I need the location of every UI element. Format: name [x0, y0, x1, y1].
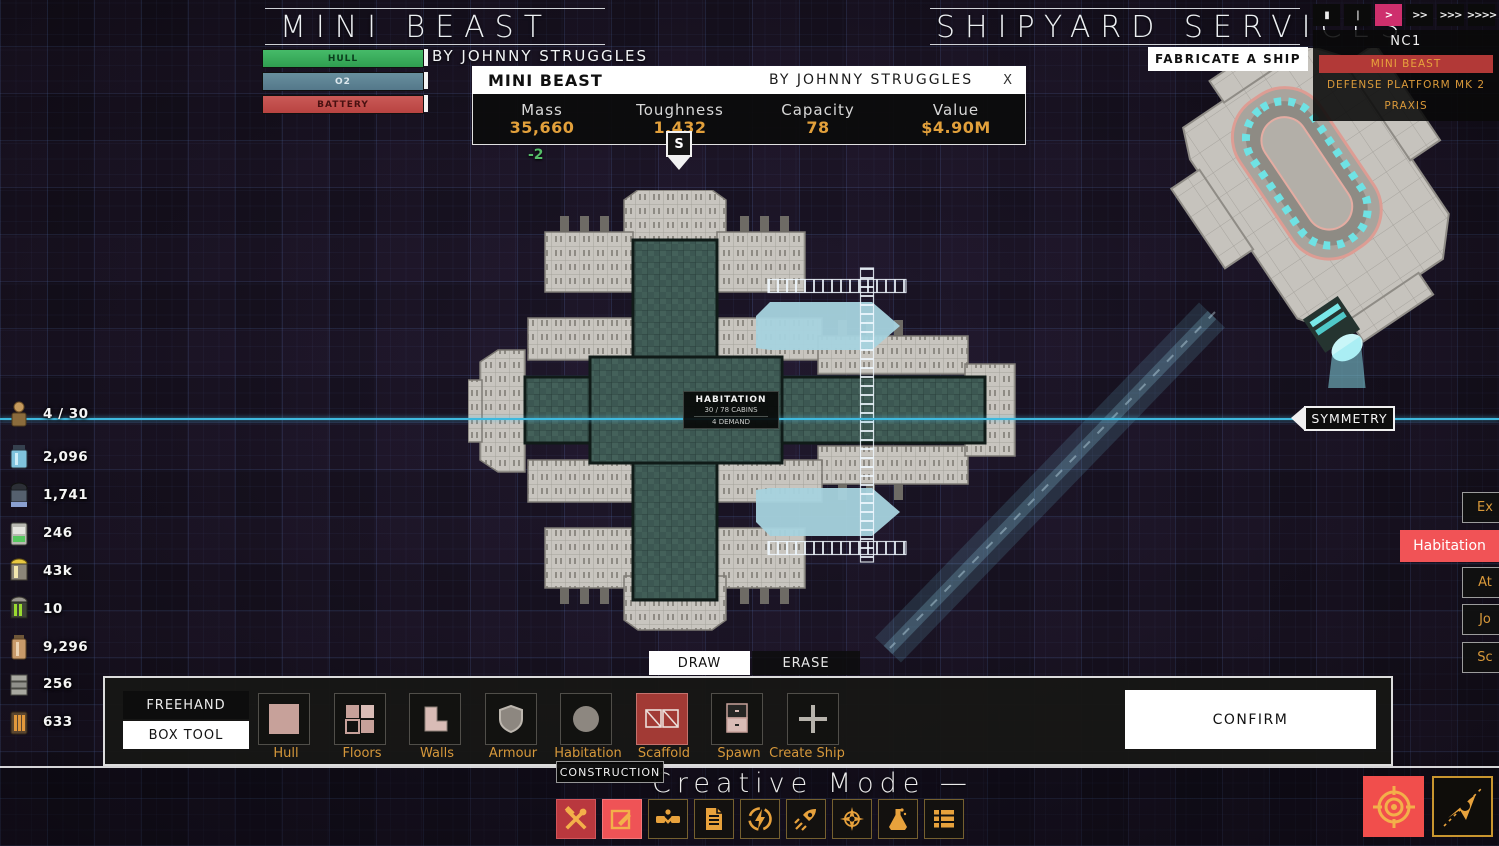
dialog-header: MINI BEAST BY JOHNNY STRUGGLES X [472, 66, 1026, 94]
barrel-green-icon [8, 595, 30, 623]
resource-value: 9,296 [43, 639, 88, 655]
construction-menu-button[interactable] [556, 799, 596, 839]
resource-row: 43k [8, 555, 72, 587]
resource-value: 10 [43, 601, 63, 617]
resource-value: 43k [43, 563, 72, 579]
page-title-left: MINI BEAST [280, 10, 552, 45]
confirm-button[interactable]: CONFIRM [1125, 690, 1376, 749]
tool-scaffold[interactable] [636, 693, 688, 745]
hull-bar-label: HULL [328, 54, 358, 64]
research-menu-button[interactable] [878, 799, 918, 839]
step-button[interactable]: | [1344, 4, 1371, 26]
ship-list-item-praxis[interactable]: PRAXIS [1319, 97, 1493, 115]
canister-dark-icon [8, 481, 30, 509]
resource-value: 1,741 [43, 487, 88, 503]
tab-erase[interactable]: ERASE [752, 651, 860, 675]
crew-icon [8, 400, 30, 428]
target-mode-button[interactable] [1363, 776, 1424, 837]
speed-controls: ▮ | > >> >>> >>>> [1313, 4, 1495, 26]
symmetry-button[interactable]: SYMMETRY [1304, 406, 1395, 431]
resource-row: 1,741 [8, 479, 88, 511]
title-rule-bottom-right [930, 44, 1300, 45]
habitation-icon [570, 703, 602, 735]
cell-green-icon [8, 519, 30, 547]
barrel-yellow-icon [8, 557, 30, 585]
side-button-sc[interactable]: Sc [1462, 642, 1499, 673]
ship-list-item-defense-platform[interactable]: DEFENSE PLATFORM MK 2 [1319, 76, 1493, 94]
draw-menu-button[interactable] [602, 799, 642, 839]
inventory-list-icon [931, 806, 957, 832]
walls-icon [419, 703, 451, 735]
stat-capacity-value: 78 [749, 118, 887, 137]
tool-hull[interactable] [258, 693, 310, 745]
habitation-room-label: HABITATION 30 / 78 CABINS 4 DEMAND [683, 391, 779, 429]
speed-4x-button[interactable]: >>>> [1468, 4, 1495, 26]
resource-row: 633 [8, 706, 73, 738]
tool-armour[interactable] [485, 693, 537, 745]
navigation-compass-icon [839, 806, 865, 832]
hull-icon [269, 704, 299, 734]
side-button-ex[interactable]: Ex [1462, 492, 1499, 523]
title-rule-top-left [265, 8, 605, 9]
scaffold-icon [644, 705, 680, 733]
tool-create-ship-label: Create Ship [767, 746, 847, 761]
freehand-tool-button[interactable]: FREEHAND [123, 691, 249, 719]
room-capacity: 30 / 78 CABINS [684, 406, 778, 414]
oxygen-bar-cap [424, 72, 428, 89]
tool-walls-label: Walls [397, 746, 477, 761]
navigate-ship-button[interactable] [1432, 776, 1493, 837]
stat-toughness-label: Toughness [611, 101, 749, 119]
resource-value: 4 / 30 [43, 406, 89, 422]
stat-capacity: Capacity 78 [749, 101, 887, 137]
contracts-document-icon [701, 806, 727, 832]
resource-value: 2,096 [43, 449, 88, 465]
tool-hull-label: Hull [246, 746, 326, 761]
tool-spawn[interactable] [711, 693, 763, 745]
tool-floors[interactable] [334, 693, 386, 745]
habitation-button[interactable]: Habitation [1400, 530, 1499, 562]
pause-button[interactable]: ▮ [1313, 4, 1340, 26]
room-demand: 4 DEMAND [694, 416, 768, 426]
tool-walls[interactable] [409, 693, 461, 745]
stat-mass-label: Mass [473, 101, 611, 119]
create-ship-plus-icon [795, 701, 831, 737]
armour-icon [495, 703, 527, 735]
battery-bar-label: BATTERY [317, 100, 369, 110]
battery-bar-cap [424, 95, 428, 112]
oxygen-bar-label: O2 [335, 77, 351, 87]
stack-gray-icon [8, 670, 30, 698]
draw-edit-icon [609, 806, 635, 832]
hull-bar: HULL [262, 49, 424, 68]
stat-mass-value: 35,660 [473, 118, 611, 137]
tab-draw[interactable]: DRAW [649, 651, 750, 675]
stat-value-label: Value [887, 101, 1025, 119]
construction-tooltip: CONSTRUCTION [556, 761, 664, 783]
tool-floors-label: Floors [322, 746, 402, 761]
tool-armour-label: Armour [473, 746, 553, 761]
title-rule-top-right [930, 8, 1300, 9]
target-crosshair-icon [1372, 785, 1416, 829]
resource-row: 9,296 [8, 631, 88, 663]
navigation-menu-button[interactable] [832, 799, 872, 839]
tool-create-ship[interactable] [787, 693, 839, 745]
resource-row: 10 [8, 593, 63, 625]
ship-list-panel: NC1 MINI BEAST DEFENSE PLATFORM MK 2 PRA… [1313, 30, 1499, 121]
resource-value: 633 [43, 714, 73, 730]
bottom-menu-bar [556, 799, 964, 839]
ship-list-title: NC1 [1313, 30, 1499, 52]
canister-tan-icon [8, 633, 30, 661]
spawn-icon [721, 702, 753, 736]
tool-habitation[interactable] [560, 693, 612, 745]
ship-list-item-mini-beast[interactable]: MINI BEAST [1319, 55, 1493, 73]
battery-bar: BATTERY [262, 95, 424, 114]
research-flask-icon [885, 806, 911, 832]
oxygen-bar: O2 [262, 72, 424, 91]
speed-3x-button[interactable]: >>> [1437, 4, 1464, 26]
hull-bar-cap [424, 49, 428, 66]
ship-heading-arrow-icon [1440, 784, 1486, 830]
resource-row-crew: 4 / 30 [8, 398, 89, 430]
speed-2x-button[interactable]: >> [1406, 4, 1433, 26]
box-tool-button[interactable]: BOX TOOL [123, 721, 249, 749]
contracts-menu-button[interactable] [694, 799, 734, 839]
dialog-title: MINI BEAST [488, 71, 769, 90]
fabricate-ship-button[interactable]: FABRICATE A SHIP [1148, 47, 1308, 71]
construction-toolbar: FREEHAND BOX TOOL Hull Floors Walls Armo… [103, 676, 1393, 766]
dialog-stats: Mass 35,660 Toughness 1,432 Capacity 78 … [472, 94, 1026, 145]
power-lightning-icon [747, 806, 773, 832]
floors-icon [344, 703, 376, 735]
stat-value-value: $4.90M [887, 118, 1025, 137]
inventory-menu-button[interactable] [924, 799, 964, 839]
power-menu-button[interactable] [740, 799, 780, 839]
spawn-marker-pointer [668, 157, 690, 170]
spawn-marker-pin[interactable]: S [666, 131, 692, 170]
resource-value: 256 [43, 676, 73, 692]
side-button-at[interactable]: At [1462, 567, 1499, 598]
dialog-author: BY JOHNNY STRUGGLES [769, 72, 973, 88]
mode-text: Creative Mode — [652, 768, 973, 799]
stat-mass: Mass 35,660 [473, 101, 611, 137]
tool-scaffold-label: Scaffold [624, 746, 704, 761]
resource-row: 246 [8, 517, 73, 549]
stat-value: Value $4.90M [887, 101, 1025, 137]
resource-row: 2,096 [8, 441, 88, 473]
stack-orange-icon [8, 708, 30, 736]
construction-tools-icon [563, 806, 589, 832]
delta-indicator: -2 [528, 147, 544, 163]
room-title: HABITATION [684, 395, 778, 405]
ship-info-dialog: MINI BEAST BY JOHNNY STRUGGLES X Mass 35… [472, 66, 1026, 145]
stat-capacity-label: Capacity [749, 101, 887, 119]
spawn-marker-letter: S [666, 131, 692, 157]
thrusters-menu-button[interactable] [786, 799, 826, 839]
resource-value: 246 [43, 525, 73, 541]
canister-blue-icon [8, 443, 30, 471]
thrusters-rocket-icon [793, 806, 819, 832]
tool-habitation-label: Habitation [548, 746, 628, 761]
ship-author-label: BY JOHNNY STRUGGLES [432, 47, 648, 65]
speed-1x-button[interactable]: > [1375, 4, 1402, 26]
trade-handshake-icon [655, 806, 681, 832]
ship-status-bars: HULL O2 BATTERY [262, 49, 424, 118]
close-icon[interactable]: X [999, 73, 1016, 88]
trade-menu-button[interactable] [648, 799, 688, 839]
side-button-jo[interactable]: Jo [1462, 604, 1499, 635]
symmetry-arrow-icon [1291, 406, 1305, 431]
title-rule-bottom-left [265, 44, 605, 45]
resource-row: 256 [8, 668, 73, 700]
